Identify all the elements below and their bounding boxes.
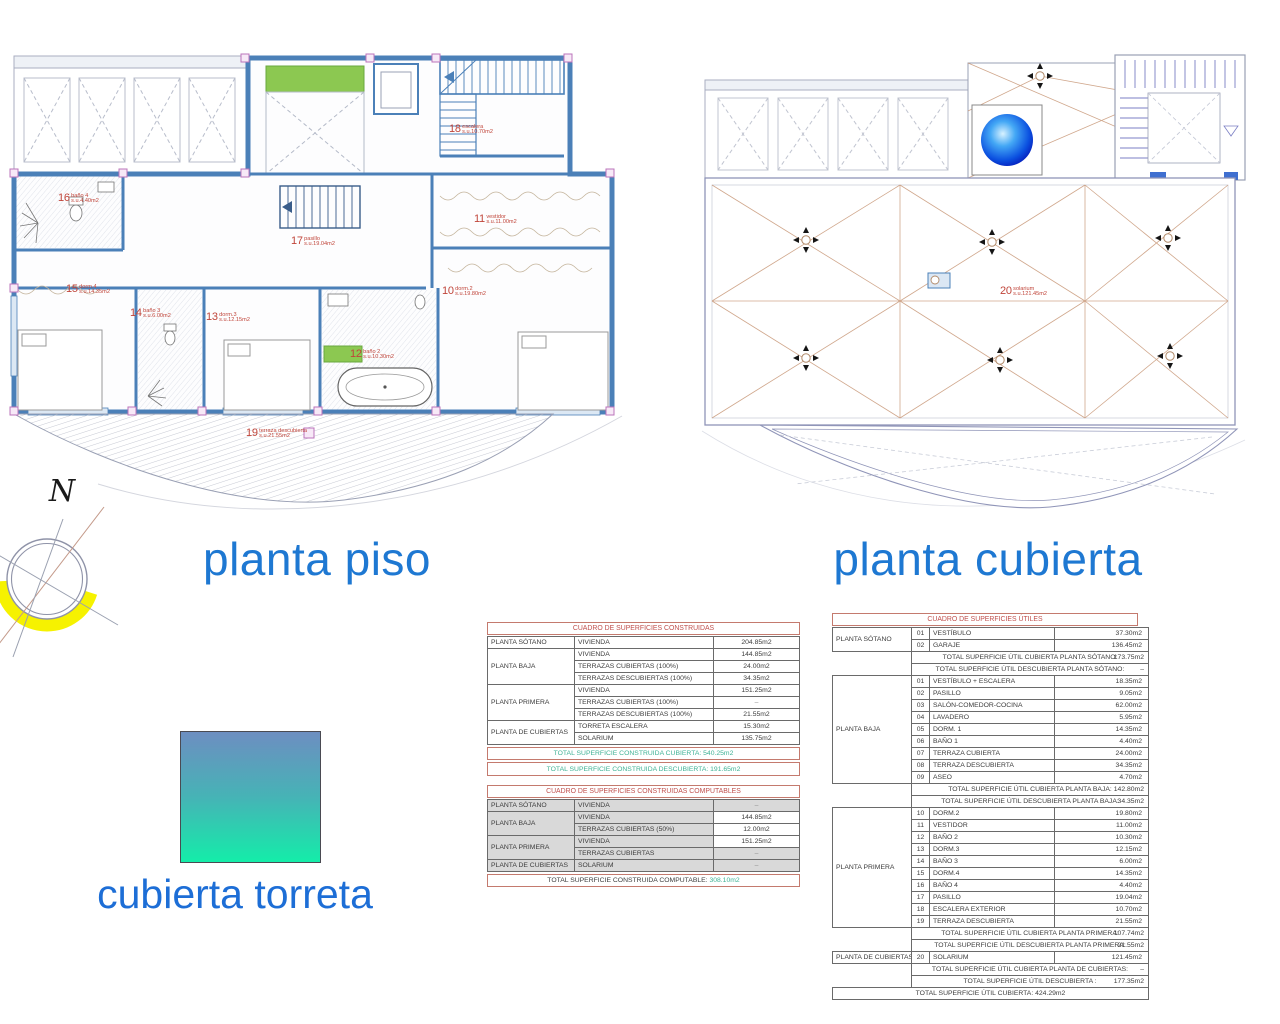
room-number-cell: 02 xyxy=(912,639,930,651)
total-row: TOTAL SUPERFICIE ÚTIL DESCUBIERTA :177.3… xyxy=(833,975,1149,987)
table-row: PLANTA DE CUBIERTASTORRETA ESCALERA15.30… xyxy=(488,720,800,732)
room-area-cell: 10.30m2 xyxy=(1055,831,1149,843)
value-cell: – xyxy=(714,847,800,859)
room-number-cell: 01 xyxy=(912,675,930,687)
room-area-cell: 11.00m2 xyxy=(1055,819,1149,831)
section-total: TOTAL SUPERFICIE ÚTIL CUBIERTA PLANTA PR… xyxy=(912,927,1149,939)
compass-yellow-arc xyxy=(1,533,93,625)
group-cell: PLANTA SÓTANO xyxy=(488,636,575,648)
plan-cubierta-title: planta cubierta xyxy=(818,532,1158,586)
roof-vent xyxy=(928,273,950,288)
room-name-cell: PASILLO xyxy=(930,687,1055,699)
room-name-cell: VESTÍBULO xyxy=(930,627,1055,639)
section-total: TOTAL SUPERFICIE ÚTIL DESCUBIERTA PLANTA… xyxy=(912,663,1149,675)
group-cell: PLANTA DE CUBIERTAS xyxy=(488,859,575,871)
table-row: PLANTA PRIMERA10DORM.219.80m2 xyxy=(833,807,1149,819)
table-row: PLANTA PRIMERAVIVIENDA151.25m2 xyxy=(488,835,800,847)
room-name-cell: DORM. 1 xyxy=(930,723,1055,735)
room-name-cell: SOLARIUM xyxy=(930,951,1055,963)
room-label-20: 20 solariums.u.121.45m2 xyxy=(1000,286,1047,298)
value-cell: 144.85m2 xyxy=(714,648,800,660)
concept-cell: VIVIENDA xyxy=(575,799,714,811)
value-cell: – xyxy=(714,859,800,871)
bathtub xyxy=(338,368,432,406)
section-total: TOTAL SUPERFICIE ÚTIL CUBIERTA PLANTA DE… xyxy=(912,963,1149,975)
room-area-cell: 136.45m2 xyxy=(1055,639,1149,651)
concept-cell: TERRAZAS CUBIERTAS (50%) xyxy=(575,823,714,835)
total-row: TOTAL SUPERFICIE ÚTIL DESCUBIERTA PLANTA… xyxy=(833,795,1149,807)
table-title: CUADRO DE SUPERFICIES ÚTILES xyxy=(832,613,1138,626)
room-number-cell: 06 xyxy=(912,735,930,747)
room-label-19: 19 terraza descubiertas.u.21.55m2 xyxy=(246,428,307,440)
section-total: TOTAL SUPERFICIE ÚTIL DESCUBIERTA :177.3… xyxy=(912,975,1149,987)
room-name-cell: ESCALERA EXTERIOR xyxy=(930,903,1055,915)
room-area-cell: 12.15m2 xyxy=(1055,843,1149,855)
room-number-cell: 19 xyxy=(912,915,930,927)
value-cell: 151.25m2 xyxy=(714,835,800,847)
concept-cell: TERRAZAS DESCUBIERTAS (100%) xyxy=(575,672,714,684)
concept-cell: SOLARIUM xyxy=(575,732,714,744)
group-cell: PLANTA DE CUBIERTAS xyxy=(833,951,912,963)
section-total: TOTAL SUPERFICIE ÚTIL CUBIERTA PLANTA SÓ… xyxy=(912,651,1149,663)
hedge xyxy=(266,66,364,92)
skylight-dome xyxy=(981,114,1033,166)
value-cell: – xyxy=(714,799,800,811)
value-cell: – xyxy=(714,696,800,708)
useful-table: PLANTA SÓTANO01VESTÍBULO37.30m202GARAJE1… xyxy=(832,627,1149,1000)
room-name-cell: BAÑO 1 xyxy=(930,735,1055,747)
room-number-cell: 09 xyxy=(912,771,930,783)
room-area-cell: 14.35m2 xyxy=(1055,867,1149,879)
room-label-17: 17 pasillos.u.19.04m2 xyxy=(291,236,335,248)
value-cell: 15.30m2 xyxy=(714,720,800,732)
group-cell: PLANTA DE CUBIERTAS xyxy=(488,720,575,744)
concept-cell: VIVIENDA xyxy=(575,835,714,847)
room-name-cell: BAÑO 4 xyxy=(930,879,1055,891)
total-row: TOTAL SUPERFICIE ÚTIL CUBIERTA PLANTA SÓ… xyxy=(833,651,1149,663)
room-name-cell: TERRAZA CUBIERTA xyxy=(930,747,1055,759)
compass: N xyxy=(0,455,140,670)
room-name-cell: SALÓN-COMEDOR-COCINA xyxy=(930,699,1055,711)
room-area-cell: 5.95m2 xyxy=(1055,711,1149,723)
elevator xyxy=(374,64,418,114)
room-number-cell: 10 xyxy=(912,807,930,819)
table-title: CUADRO DE SUPERFICIES CONSTRUIDAS xyxy=(487,622,800,635)
room-number-cell: 14 xyxy=(912,855,930,867)
room-area-cell: 24.00m2 xyxy=(1055,747,1149,759)
room-name-cell: GARAJE xyxy=(930,639,1055,651)
table-total-row: TOTAL SUPERFICIE CONSTRUIDA DESCUBIERTA:… xyxy=(487,762,800,775)
table-total-row: TOTAL SUPERFICIE CONSTRUIDA COMPUTABLE: … xyxy=(487,874,800,887)
room-name-cell: VESTIDOR xyxy=(930,819,1055,831)
stair-tower xyxy=(1115,55,1245,180)
total-row: TOTAL SUPERFICIE ÚTIL CUBIERTA PLANTA BA… xyxy=(833,783,1149,795)
table-row: PLANTA SÓTANOVIVIENDA– xyxy=(488,799,800,811)
concept-cell: VIVIENDA xyxy=(575,648,714,660)
room-number-cell: 03 xyxy=(912,699,930,711)
room-area-cell: 4.40m2 xyxy=(1055,879,1149,891)
room-name-cell: TERRAZA DESCUBIERTA xyxy=(930,915,1055,927)
concept-cell: TORRETA ESCALERA xyxy=(575,720,714,732)
total-row: TOTAL SUPERFICIE ÚTIL DESCUBIERTA PLANTA… xyxy=(833,939,1149,951)
table-row: PLANTA BAJAVIVIENDA144.85m2 xyxy=(488,811,800,823)
group-cell: PLANTA BAJA xyxy=(833,675,912,783)
concept-cell: SOLARIUM xyxy=(575,859,714,871)
room-number-cell: 12 xyxy=(912,831,930,843)
room-number-cell: 18 xyxy=(912,903,930,915)
room-number-cell: 08 xyxy=(912,759,930,771)
concept-cell: TERRAZAS CUBIERTAS xyxy=(575,847,714,859)
room-name-cell: VESTÍBULO + ESCALERA xyxy=(930,675,1055,687)
total-row: TOTAL SUPERFICIE ÚTIL DESCUBIERTA PLANTA… xyxy=(833,663,1149,675)
room-area-cell: 19.04m2 xyxy=(1055,891,1149,903)
concept-cell: VIVIENDA xyxy=(575,811,714,823)
group-cell: PLANTA PRIMERA xyxy=(488,835,575,859)
concept-cell: VIVIENDA xyxy=(575,636,714,648)
room-label-14: 14 baño 3s.u.6.00m2 xyxy=(130,308,171,320)
grand-total-row: TOTAL SUPERFICIE ÚTIL CUBIERTA: 424.29m2 xyxy=(833,987,1149,999)
table-row: PLANTA DE CUBIERTASSOLARIUM– xyxy=(488,859,800,871)
room-area-cell: 37.30m2 xyxy=(1055,627,1149,639)
drawing-sheet: N planta piso planta cubierta cubierta t… xyxy=(0,0,1280,1024)
room-number-cell: 13 xyxy=(912,843,930,855)
room-name-cell: ASEO xyxy=(930,771,1055,783)
table-superficies-utiles: CUADRO DE SUPERFICIES ÚTILESPLANTA SÓTAN… xyxy=(832,613,1138,1000)
cubierta-torreta-swatch xyxy=(180,731,321,863)
roof-lower-terrace xyxy=(702,425,1245,508)
value-cell: 144.85m2 xyxy=(714,811,800,823)
pergola-strip xyxy=(14,56,248,174)
concept-cell: TERRAZAS CUBIERTAS (100%) xyxy=(575,660,714,672)
room-area-cell: 4.70m2 xyxy=(1055,771,1149,783)
room-label-18: 18 escaleras.u.10.70m2 xyxy=(449,124,493,136)
room-label-15: 15 dorm.4s.u.14.35m2 xyxy=(66,284,110,296)
value-cell: 21.55m2 xyxy=(714,708,800,720)
north-letter: N xyxy=(48,474,77,509)
room-area-cell: 18.35m2 xyxy=(1055,675,1149,687)
value-cell: 151.25m2 xyxy=(714,684,800,696)
concept-cell: TERRAZAS CUBIERTAS (100%) xyxy=(575,696,714,708)
plan-piso-drawing xyxy=(8,36,648,526)
table-row: PLANTA PRIMERAVIVIENDA151.25m2 xyxy=(488,684,800,696)
group-cell: PLANTA PRIMERA xyxy=(488,684,575,720)
room-number-cell: 17 xyxy=(912,891,930,903)
room-label-11: 11 vestidors.u.11.00m2 xyxy=(474,214,517,226)
group-cell: PLANTA BAJA xyxy=(488,648,575,684)
room-area-cell: 34.35m2 xyxy=(1055,759,1149,771)
plan-cubierta-drawing xyxy=(700,48,1275,523)
room-number-cell: 11 xyxy=(912,819,930,831)
room-area-cell: 121.45m2 xyxy=(1055,951,1149,963)
room-number-cell: 15 xyxy=(912,867,930,879)
concept-cell: VIVIENDA xyxy=(575,684,714,696)
room-number-cell: 02 xyxy=(912,687,930,699)
room-name-cell: DORM.3 xyxy=(930,843,1055,855)
room-label-13: 13 dorm.3s.u.12.15m2 xyxy=(206,312,250,324)
surface-table: PLANTA SÓTANOVIVIENDA–PLANTA BAJAVIVIEND… xyxy=(487,799,800,872)
value-cell: 34.35m2 xyxy=(714,672,800,684)
room-name-cell: LAVADERO xyxy=(930,711,1055,723)
value-cell: 24.00m2 xyxy=(714,660,800,672)
table-row: PLANTA SÓTANO01VESTÍBULO37.30m2 xyxy=(833,627,1149,639)
room-name-cell: BAÑO 2 xyxy=(930,831,1055,843)
room-area-cell: 21.55m2 xyxy=(1055,915,1149,927)
table-total-row: TOTAL SUPERFICIE CONSTRUIDA CUBIERTA: 54… xyxy=(487,747,800,760)
table-row: PLANTA BAJA01VESTÍBULO + ESCALERA18.35m2 xyxy=(833,675,1149,687)
plan-piso-title: planta piso xyxy=(167,532,467,586)
room-name-cell: TERRAZA DESCUBIERTA xyxy=(930,759,1055,771)
room-area-cell: 62.00m2 xyxy=(1055,699,1149,711)
room-name-cell: DORM.2 xyxy=(930,807,1055,819)
value-cell: 12.00m2 xyxy=(714,823,800,835)
table-row: PLANTA DE CUBIERTAS20SOLARIUM121.45m2 xyxy=(833,951,1149,963)
group-cell: PLANTA BAJA xyxy=(488,811,575,835)
value-cell: 135.75m2 xyxy=(714,732,800,744)
table-superficies-construidas: CUADRO DE SUPERFICIES CONSTRUIDASPLANTA … xyxy=(487,622,800,776)
group-cell: PLANTA SÓTANO xyxy=(833,627,912,651)
grand-total: TOTAL SUPERFICIE ÚTIL CUBIERTA: 424.29m2 xyxy=(833,987,1149,999)
concept-cell: TERRAZAS DESCUBIERTAS (100%) xyxy=(575,708,714,720)
table-row: PLANTA SÓTANOVIVIENDA204.85m2 xyxy=(488,636,800,648)
table-title: CUADRO DE SUPERFICIES CONSTRUIDAS COMPUT… xyxy=(487,785,800,798)
room-area-cell: 10.70m2 xyxy=(1055,903,1149,915)
value-cell: 204.85m2 xyxy=(714,636,800,648)
total-row: TOTAL SUPERFICIE ÚTIL CUBIERTA PLANTA DE… xyxy=(833,963,1149,975)
room-area-cell: 4.40m2 xyxy=(1055,735,1149,747)
room-name-cell: DORM.4 xyxy=(930,867,1055,879)
room-number-cell: 16 xyxy=(912,879,930,891)
room-name-cell: BAÑO 3 xyxy=(930,855,1055,867)
room-number-cell: 07 xyxy=(912,747,930,759)
room-area-cell: 6.00m2 xyxy=(1055,855,1149,867)
group-cell: PLANTA SÓTANO xyxy=(488,799,575,811)
room-area-cell: 19.80m2 xyxy=(1055,807,1149,819)
cubierta-torreta-title: cubierta torreta xyxy=(85,871,385,918)
room-area-cell: 14.35m2 xyxy=(1055,723,1149,735)
room-area-cell: 9.05m2 xyxy=(1055,687,1149,699)
table-row: PLANTA BAJAVIVIENDA144.85m2 xyxy=(488,648,800,660)
surface-table: PLANTA SÓTANOVIVIENDA204.85m2PLANTA BAJA… xyxy=(487,636,800,745)
section-total: TOTAL SUPERFICIE ÚTIL CUBIERTA PLANTA BA… xyxy=(912,783,1149,795)
roof-pergola-strip xyxy=(705,80,968,178)
room-number-cell: 01 xyxy=(912,627,930,639)
room-label-10: 10 dorm.2s.u.19.80m2 xyxy=(442,286,486,298)
room-number-cell: 20 xyxy=(912,951,930,963)
section-total: TOTAL SUPERFICIE ÚTIL DESCUBIERTA PLANTA… xyxy=(912,939,1149,951)
section-total: TOTAL SUPERFICIE ÚTIL DESCUBIERTA PLANTA… xyxy=(912,795,1149,807)
room-number-cell: 04 xyxy=(912,711,930,723)
room-label-12: 12 baño 2s.u.10.30m2 xyxy=(350,349,394,361)
table-superficies-computables: CUADRO DE SUPERFICIES CONSTRUIDAS COMPUT… xyxy=(487,785,800,887)
group-cell: PLANTA PRIMERA xyxy=(833,807,912,927)
room-number-cell: 05 xyxy=(912,723,930,735)
room-name-cell: PASILLO xyxy=(930,891,1055,903)
roof-body xyxy=(705,178,1235,425)
total-row: TOTAL SUPERFICIE ÚTIL CUBIERTA PLANTA PR… xyxy=(833,927,1149,939)
room-label-16: 16 baño 4s.u.4.40m2 xyxy=(58,193,99,205)
